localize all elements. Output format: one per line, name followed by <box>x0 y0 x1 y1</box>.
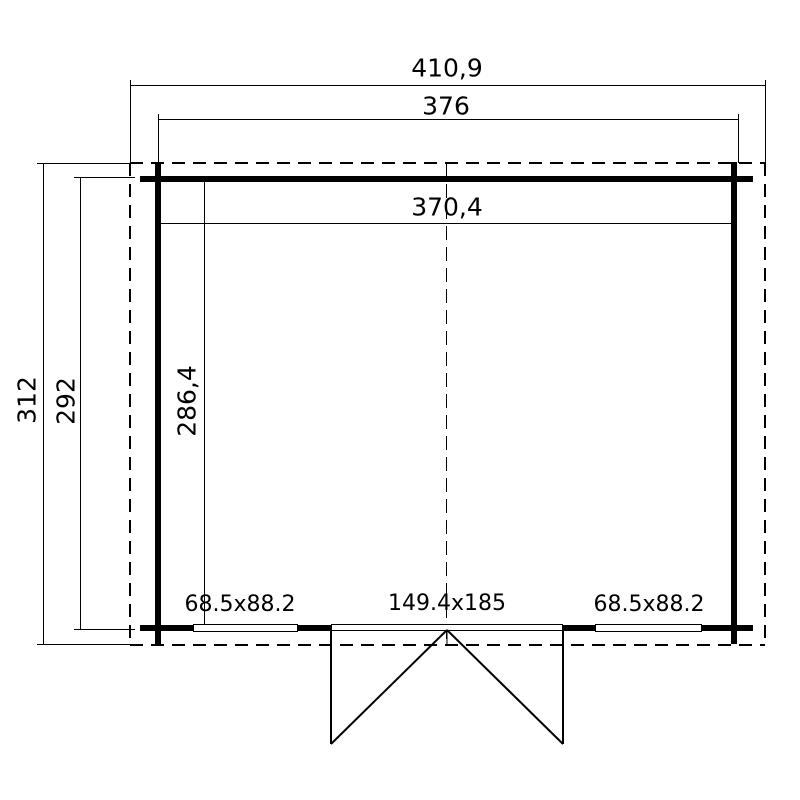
dim-wall-depth-label: 292 <box>54 377 79 425</box>
wall-top <box>140 176 753 182</box>
ext-line-wall-depth-top <box>74 177 135 178</box>
dim-wall-width-label: 376 <box>422 94 470 119</box>
wall-bottom-segment-4 <box>702 625 753 631</box>
ext-line-roof-depth-bottom <box>37 644 140 645</box>
door-swing-line-left <box>331 630 447 744</box>
ext-line-roof-width-left <box>130 80 131 163</box>
center-line <box>446 163 447 645</box>
wall-right <box>731 162 737 644</box>
roof-outline-right <box>764 163 766 645</box>
dim-line-interior-depth <box>204 182 205 624</box>
ext-line-roof-depth-top <box>37 163 140 164</box>
door-swing <box>324 626 570 750</box>
roof-outline-left <box>129 163 131 645</box>
dim-line-roof-depth <box>43 163 44 644</box>
dim-roof-width-label: 410,9 <box>411 56 483 81</box>
right-window <box>595 624 702 632</box>
dim-roof-depth-label: 312 <box>15 376 40 424</box>
floor-plan: 410,9 376 370,4 312 292 286,4 68.5x88.2 … <box>0 0 800 800</box>
ext-line-wall-width-right <box>738 114 739 163</box>
ext-line-roof-width-right <box>765 80 766 163</box>
roof-outline-top <box>130 162 765 164</box>
ext-line-wall-width-left <box>158 114 159 176</box>
door-size-label: 149.4x185 <box>388 593 506 615</box>
dim-line-interior-width <box>161 223 731 224</box>
wall-bottom-segment-1 <box>140 625 193 631</box>
right-window-size-label: 68.5x88.2 <box>594 594 705 616</box>
door-swing-line-right <box>447 630 563 744</box>
dim-interior-depth-label: 286,4 <box>175 365 200 437</box>
left-window <box>193 624 298 632</box>
dim-line-roof-width <box>130 85 765 86</box>
wall-left <box>155 162 161 644</box>
ext-line-wall-depth-bottom <box>74 629 135 630</box>
left-window-size-label: 68.5x88.2 <box>185 594 296 616</box>
dim-interior-width-label: 370,4 <box>411 195 483 220</box>
